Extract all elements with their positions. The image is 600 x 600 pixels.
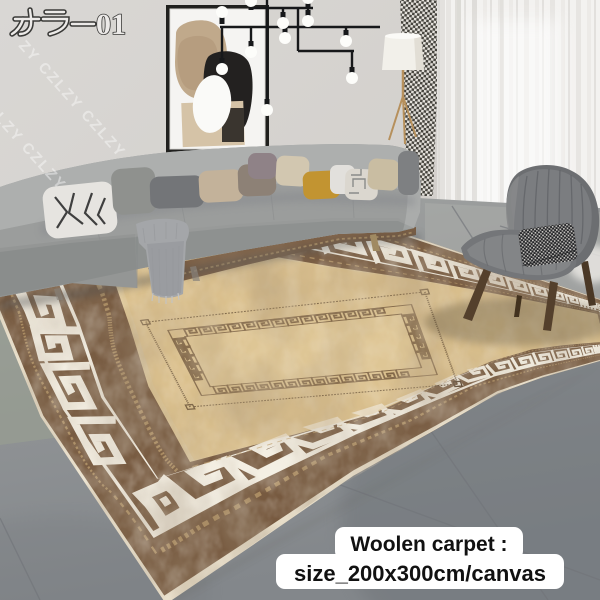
- svg-text:size_200x300cm/canvas: size_200x300cm/canvas: [294, 561, 546, 586]
- svg-text:01: 01: [96, 8, 126, 41]
- svg-text:Woolen carpet :: Woolen carpet :: [350, 533, 507, 556]
